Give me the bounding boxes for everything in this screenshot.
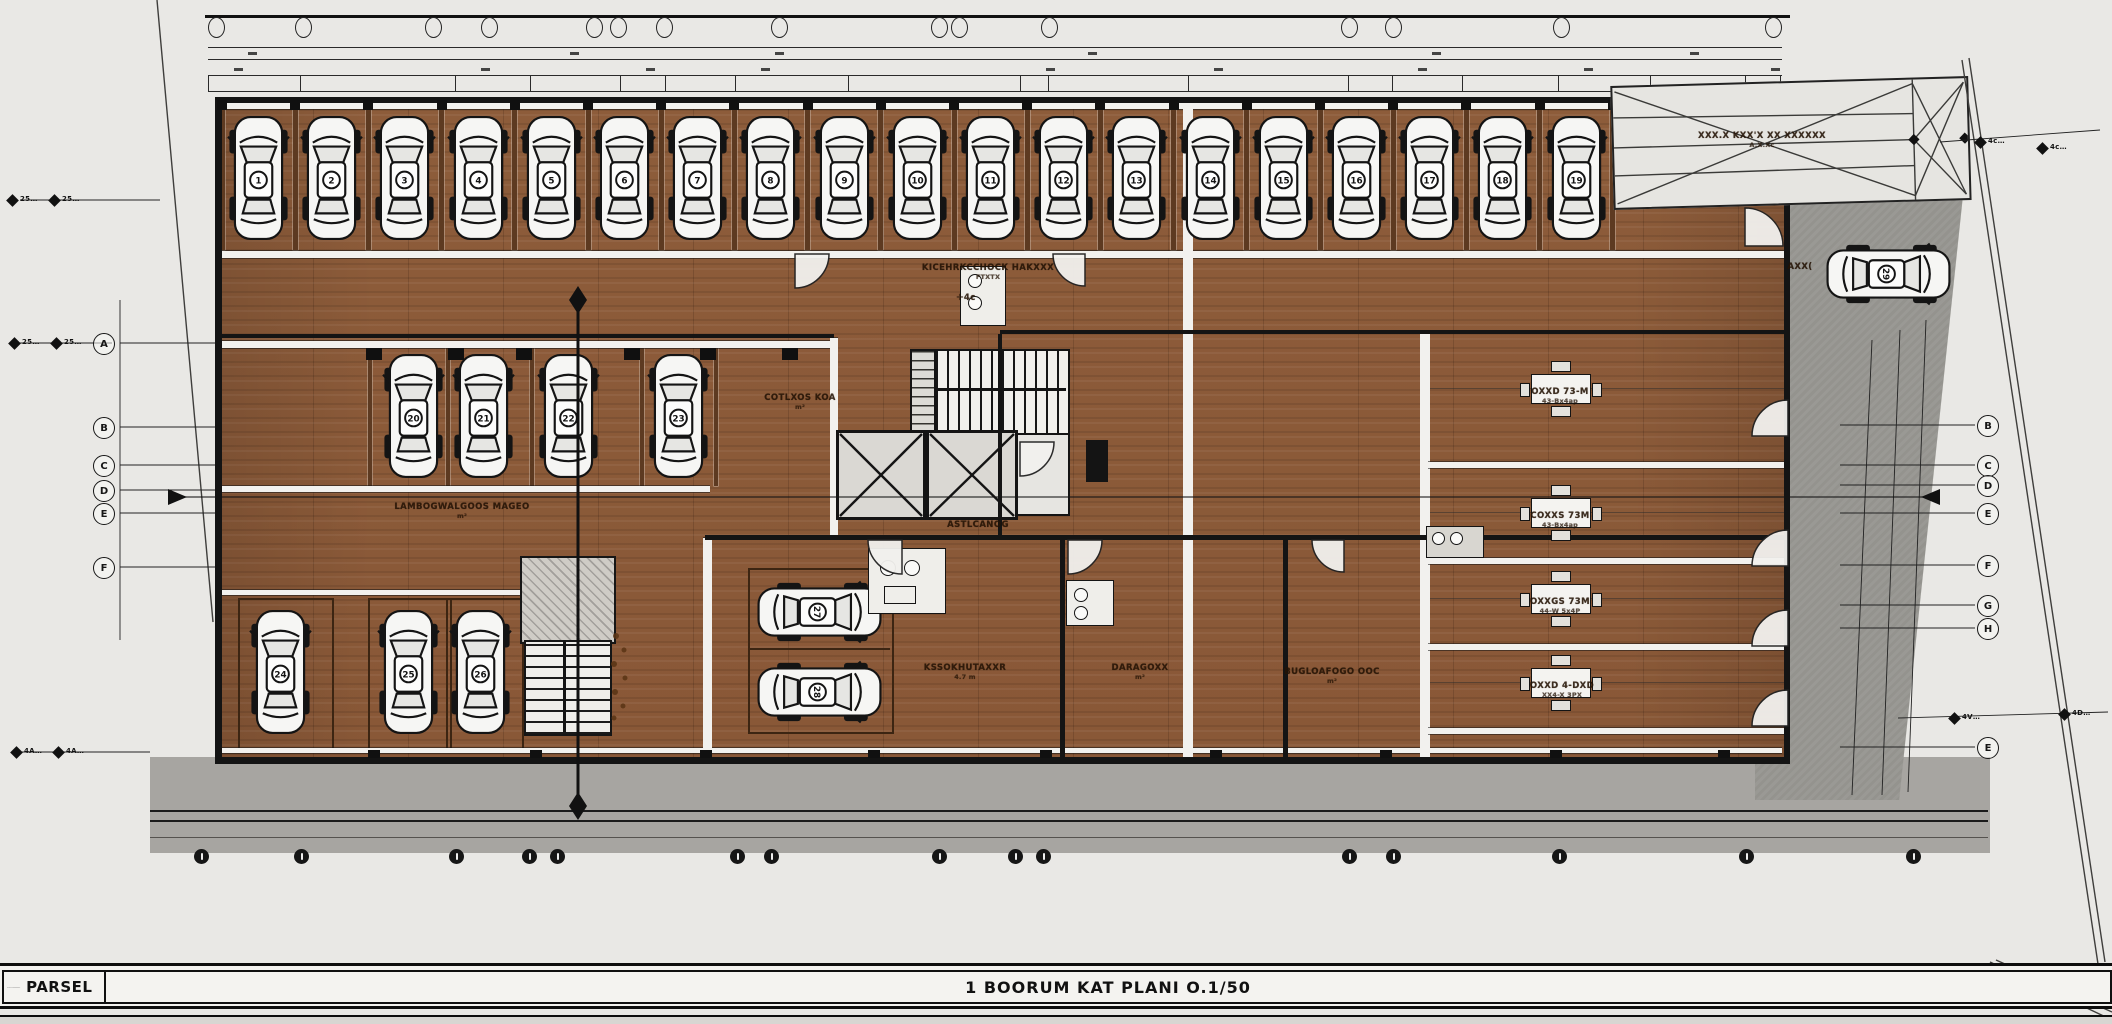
parked-car: 14	[1182, 114, 1239, 242]
dim-text: 4A…	[66, 747, 84, 755]
dim-text: 4c…	[2050, 143, 2067, 151]
svg-text:15: 15	[1277, 176, 1289, 186]
svg-text:18: 18	[1497, 176, 1509, 186]
dim-text: 4D…	[2072, 709, 2091, 717]
desk-chair	[1520, 383, 1530, 397]
kitchen-2	[1066, 580, 1114, 626]
wc-room	[868, 548, 946, 614]
parked-car: 3	[376, 114, 433, 242]
grid-circle-top	[295, 17, 312, 38]
floor-plan-sheet: ............ PARSEL 1 BOORUM KAT PLANI O…	[0, 0, 2112, 1024]
grid-bubble-bottom	[1552, 849, 1567, 864]
dim-diamond	[1948, 712, 1961, 725]
parked-car: 6	[596, 114, 653, 242]
parked-car: 26	[452, 608, 509, 736]
grid-bubble-right: E	[1977, 503, 1999, 525]
grid-bubble-bottom	[1906, 849, 1921, 864]
core-label: ASTLCANOG	[947, 520, 1009, 530]
svg-text:2: 2	[329, 176, 335, 186]
parked-car: 8	[742, 114, 799, 242]
dim-text: 4V…	[1962, 713, 1980, 721]
office-2-label: COXXS 73M43-Bx4ap	[1530, 511, 1589, 529]
desk-chair	[1551, 616, 1571, 627]
grid-circle-top	[1553, 17, 1570, 38]
parked-car: 13	[1108, 114, 1165, 242]
desk-chair	[1551, 485, 1571, 496]
dim-diamond	[1974, 136, 1987, 149]
service-room	[520, 556, 616, 644]
south-apron	[150, 757, 1990, 853]
ramp-label: XXX.X KXX'X XX XXXXXXA.X.Xc	[1698, 131, 1826, 149]
parked-car: 25	[380, 608, 437, 736]
grid-bubble-left: D	[93, 480, 115, 502]
desk-chair	[1520, 507, 1530, 521]
grid-circle-top	[1765, 17, 1782, 38]
parked-car: 19	[1548, 114, 1605, 242]
grid-bubble-bottom	[194, 849, 209, 864]
grid-circle-top	[425, 17, 442, 38]
grid-bubble-bottom	[932, 849, 947, 864]
desk-chair	[1551, 700, 1571, 711]
svg-text:25: 25	[402, 670, 414, 680]
parked-car: 23	[650, 352, 707, 480]
dim-diamond	[6, 194, 19, 207]
elevator-lobby	[1016, 432, 1070, 516]
grid-circle-top	[951, 17, 968, 38]
room-d-label: BUGLOAFOGO OOCm²	[1284, 667, 1380, 685]
svg-text:27: 27	[811, 606, 821, 618]
dim-diamond	[50, 337, 63, 350]
desk-chair	[1520, 593, 1530, 607]
svg-text:17: 17	[1424, 176, 1436, 186]
building-wall-top	[215, 97, 1790, 103]
desk-chair	[1551, 406, 1571, 417]
svg-text:26: 26	[474, 670, 486, 680]
svg-text:5: 5	[548, 176, 554, 186]
grid-bubble-right: B	[1977, 415, 1999, 437]
grid-bubble-bottom	[1386, 849, 1401, 864]
parked-car: 21	[455, 352, 512, 480]
grid-bubble-left: C	[93, 455, 115, 477]
office-1-label: OXXD 73-M43-Bx4ap	[1531, 387, 1588, 405]
building-wall-bottom	[215, 757, 1790, 764]
parsel-label: PARSEL	[26, 978, 92, 996]
grid-bubble-bottom	[449, 849, 464, 864]
svg-text:14: 14	[1204, 176, 1216, 186]
parsel-cell: ............ PARSEL	[2, 970, 108, 1004]
parked-car: 17	[1401, 114, 1458, 242]
grid-circle-top	[610, 17, 627, 38]
svg-text:3: 3	[402, 176, 408, 186]
grid-circle-top	[1385, 17, 1402, 38]
desk-chair	[1551, 361, 1571, 372]
svg-text:24: 24	[274, 670, 286, 680]
dim-diamond	[48, 194, 61, 207]
parked-car: 20	[385, 352, 442, 480]
parked-car: 9	[816, 114, 873, 242]
parsel-stamp: ............	[7, 984, 20, 990]
parked-car: 7	[669, 114, 726, 242]
dim-diamond	[52, 746, 65, 759]
room-c-label: DARAGOXXm²	[1112, 663, 1169, 681]
parked-car: 24	[252, 608, 309, 736]
svg-text:6: 6	[621, 176, 627, 186]
parked-car: 16	[1328, 114, 1385, 242]
grid-bubble-right: F	[1977, 555, 1999, 577]
svg-text:19: 19	[1570, 176, 1582, 186]
desk-chair	[1592, 507, 1602, 521]
aisle-room-label: KICEHRKCCHOCK HAKXXXFTXTX	[922, 263, 1054, 281]
grid-bubble-bottom	[730, 849, 745, 864]
grid-bubble-right: G	[1977, 595, 1999, 617]
desk-chair	[1551, 530, 1571, 541]
parked-car: 10	[889, 114, 946, 242]
dim-diamond	[2036, 142, 2049, 155]
grid-bubble-right: D	[1977, 475, 1999, 497]
row3-area-label: LAMBOGWALGOOS MAGEOm²	[394, 502, 529, 520]
small-room-label: COTLXOS KOAm²	[764, 393, 835, 411]
room-b-label: KSSOKHUTAXXR4.7 m	[924, 663, 1006, 681]
parked-car: 28	[755, 664, 883, 721]
sheet-title-cell: 1 BOORUM KAT PLANI O.1/50	[104, 970, 2112, 1004]
dim-text: 4A…	[24, 747, 42, 755]
aisle-mark: ✛4c	[956, 293, 975, 303]
grid-circle-top	[931, 17, 948, 38]
dim-text: 25…	[62, 195, 80, 203]
service-stair	[524, 640, 612, 736]
grid-bubble-bottom	[1739, 849, 1754, 864]
parked-car: 11	[962, 114, 1019, 242]
grid-circle-top	[208, 17, 225, 38]
desk-chair	[1551, 655, 1571, 666]
grid-circle-top	[481, 17, 498, 38]
svg-text:20: 20	[407, 414, 419, 424]
parked-car: 22	[540, 352, 597, 480]
building-wall-left	[215, 97, 222, 764]
svg-text:9: 9	[841, 176, 847, 186]
parked-car: 5	[523, 114, 580, 242]
grid-bubble-left: F	[93, 557, 115, 579]
svg-text:22: 22	[562, 414, 574, 424]
grid-circle-top	[1041, 17, 1058, 38]
svg-text:11: 11	[984, 176, 996, 186]
svg-text:21: 21	[477, 414, 489, 424]
grid-bubble-bottom	[294, 849, 309, 864]
parked-car: 18	[1474, 114, 1531, 242]
stair-core	[934, 349, 1070, 435]
grid-bubble-bottom	[1036, 849, 1051, 864]
dim-text: 25…	[22, 338, 40, 346]
grid-bubble-right: H	[1977, 618, 1999, 640]
grid-bubble-left: E	[93, 503, 115, 525]
parked-car: 27	[755, 584, 883, 641]
title-block: ............ PARSEL 1 BOORUM KAT PLANI O…	[0, 963, 2112, 1024]
svg-text:10: 10	[911, 176, 923, 186]
desk-chair	[1520, 677, 1530, 691]
parked-car: 29	[1824, 246, 1952, 303]
dim-text: 25…	[20, 195, 38, 203]
desk-chair	[1592, 383, 1602, 397]
grid-bubble-left: B	[93, 417, 115, 439]
dim-diamond	[8, 337, 21, 350]
dim-diamond	[10, 746, 23, 759]
parked-car: 2	[303, 114, 360, 242]
svg-text:23: 23	[672, 414, 684, 424]
grid-bubble-right: E	[1977, 737, 1999, 759]
desk-chair	[1592, 593, 1602, 607]
grid-bubble-left: A	[93, 333, 115, 355]
office-4-label: OXXD 4-DXDXX4-X 3PX	[1530, 681, 1594, 699]
grid-bubble-bottom	[522, 849, 537, 864]
dim-diamond	[2058, 708, 2071, 721]
sheet-title: 1 BOORUM KAT PLANI O.1/50	[965, 978, 1251, 997]
svg-text:16: 16	[1350, 176, 1362, 186]
grid-circle-top	[771, 17, 788, 38]
grid-bubble-right: C	[1977, 455, 1999, 477]
grid-bubble-bottom	[1342, 849, 1357, 864]
grid-bubble-bottom	[1008, 849, 1023, 864]
svg-text:28: 28	[811, 686, 821, 698]
grid-circle-top	[1341, 17, 1358, 38]
svg-text:29: 29	[1880, 268, 1890, 280]
drive-car-label: AXX(	[1787, 262, 1812, 272]
desk-chair	[1551, 571, 1571, 582]
parked-car: 4	[450, 114, 507, 242]
grid-bubble-bottom	[550, 849, 565, 864]
svg-text:1: 1	[255, 176, 261, 186]
svg-text:7: 7	[695, 176, 701, 186]
dim-text: 25…	[64, 338, 82, 346]
office-3-label: OXXGS 73M44-W 5x4P	[1530, 597, 1590, 615]
parked-car: 15	[1255, 114, 1312, 242]
dim-text: 4c…	[1988, 137, 2005, 145]
grid-circle-top	[656, 17, 673, 38]
grid-circle-top	[586, 17, 603, 38]
svg-text:4: 4	[475, 176, 481, 186]
svg-text:8: 8	[768, 176, 774, 186]
svg-text:13: 13	[1131, 176, 1143, 186]
grid-bubble-bottom	[764, 849, 779, 864]
duct-shaft	[910, 349, 936, 435]
parked-car: 1	[230, 114, 287, 242]
svg-text:12: 12	[1058, 176, 1070, 186]
parked-car: 12	[1035, 114, 1092, 242]
